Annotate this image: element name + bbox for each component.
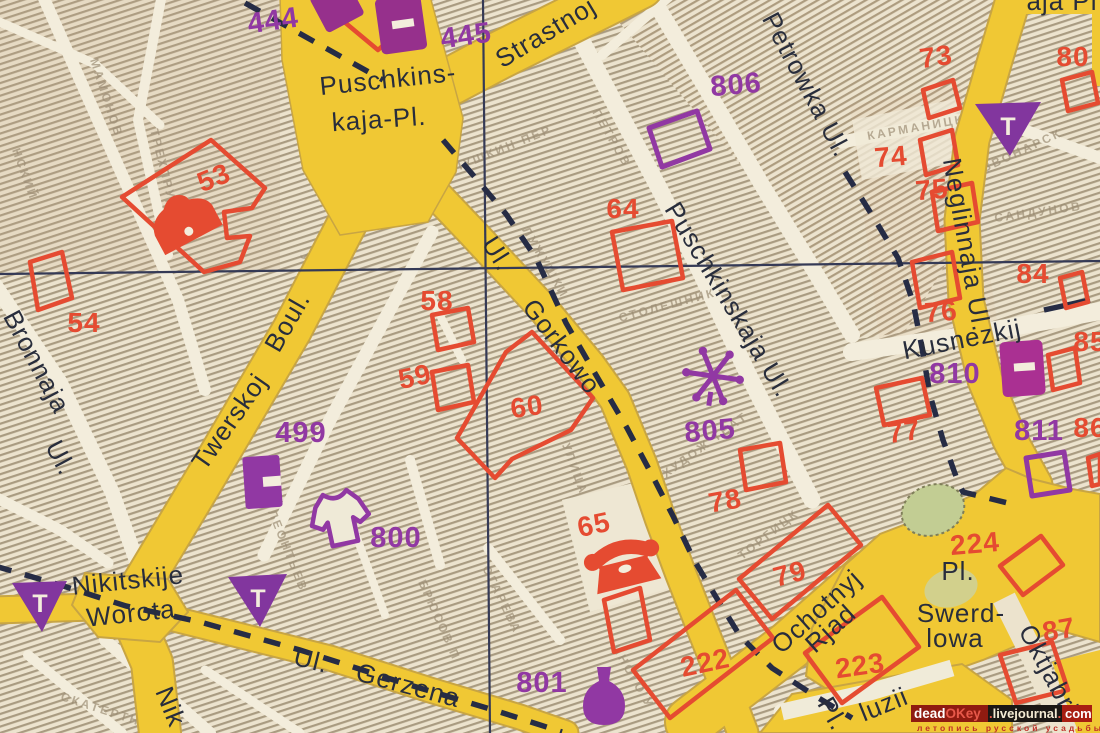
svg-text:.livejournal.: .livejournal.: [989, 706, 1061, 721]
svg-text:deadOKey: deadOKey: [914, 706, 981, 721]
svg-text:com: com: [1065, 706, 1092, 721]
svg-text:летопись русской усадьбы: летопись русской усадьбы: [917, 723, 1100, 733]
